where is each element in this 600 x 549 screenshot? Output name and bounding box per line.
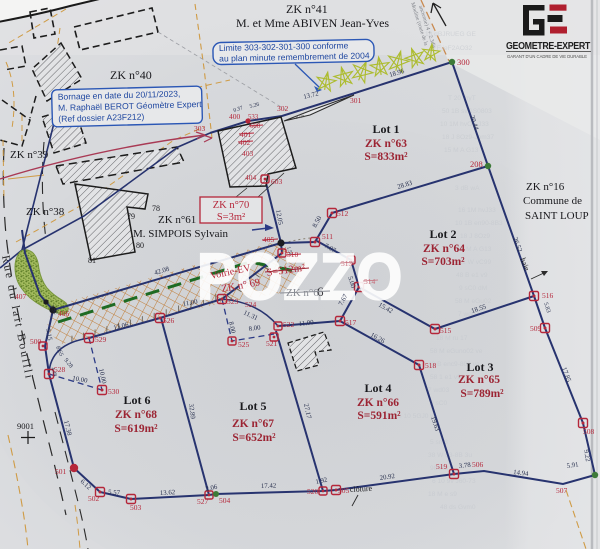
svg-text:10 1M hvO6-J33: 10 1M hvO6-J33 — [440, 121, 489, 128]
svg-text:505: 505 — [338, 486, 350, 495]
svg-text:S=619m²: S=619m² — [114, 423, 158, 435]
svg-text:Lot 2: Lot 2 — [430, 227, 457, 241]
svg-text:58 M eGuno02 ve: 58 M eGuno02 ve — [430, 348, 483, 355]
svg-text:ZK n°68: ZK n°68 — [115, 409, 157, 421]
svg-text:403: 403 — [242, 149, 254, 158]
svg-text:Lot 5: Lot 5 — [240, 399, 267, 413]
svg-text:301: 301 — [350, 96, 362, 105]
svg-text:13.62: 13.62 — [160, 489, 176, 497]
svg-text:SAINT LOUP: SAINT LOUP — [525, 210, 589, 222]
svg-text:522: 522 — [283, 320, 295, 329]
svg-text:501: 501 — [55, 467, 67, 476]
svg-text:S=789m²: S=789m² — [460, 388, 504, 400]
svg-text:GARANT D'UN CADRE DE VIE DURAB: GARANT D'UN CADRE DE VIE DURABLE — [507, 54, 587, 59]
svg-text:3.78: 3.78 — [458, 462, 471, 470]
svg-text:516: 516 — [542, 291, 554, 300]
svg-text:78: 78 — [152, 204, 160, 213]
svg-text:ZK n°16: ZK n°16 — [526, 181, 565, 193]
svg-text:ZK n°70: ZK n°70 — [213, 200, 250, 211]
svg-text:7 wd03: 7 wd03 — [428, 387, 450, 394]
svg-text:527: 527 — [197, 497, 209, 506]
svg-text:15 M A G13: 15 M A G13 — [444, 147, 479, 154]
svg-text:208: 208 — [470, 159, 483, 169]
svg-text:524: 524 — [245, 300, 257, 309]
svg-text:402: 402 — [239, 138, 251, 147]
svg-text:533: 533 — [248, 114, 259, 121]
svg-text:18 M ru 17: 18 M ru 17 — [436, 335, 468, 342]
svg-text:10 1B en90-8B3: 10 1B en90-8B3 — [455, 220, 503, 227]
svg-text:406: 406 — [58, 309, 70, 318]
svg-text:525: 525 — [238, 340, 250, 349]
svg-text:600: 600 — [250, 123, 261, 130]
svg-text:17.42: 17.42 — [261, 482, 277, 490]
svg-text:Lot 3: Lot 3 — [467, 360, 494, 374]
svg-text:T 20. hyT: T 20. hyT — [448, 95, 476, 102]
svg-text:302: 302 — [277, 104, 289, 113]
svg-text:Lot 4: Lot 4 — [365, 381, 392, 395]
svg-text:5.57: 5.57 — [108, 489, 121, 497]
svg-text:508: 508 — [583, 427, 595, 436]
svg-text:ZK n°61: ZK n°61 — [158, 214, 196, 226]
svg-text:M. et Mme ABIVEN Jean-Yves: M. et Mme ABIVEN Jean-Yves — [236, 16, 389, 30]
svg-text:clôture: clôture — [350, 484, 373, 494]
svg-text:529: 529 — [95, 335, 107, 344]
svg-text:521: 521 — [266, 339, 278, 348]
svg-text:504: 504 — [219, 496, 231, 505]
svg-text:518: 518 — [425, 361, 437, 370]
svg-text:ZK n°41: ZK n°41 — [286, 2, 328, 16]
svg-text:9001: 9001 — [17, 421, 34, 431]
svg-text:58 M eGu02: 58 M eGu02 — [455, 298, 492, 305]
svg-text:GEOMETRE-EXPERT: GEOMETRE-EXPERT — [506, 41, 591, 52]
svg-text:506: 506 — [472, 460, 484, 469]
svg-text:303: 303 — [194, 124, 206, 133]
svg-text:530: 530 — [108, 387, 120, 396]
svg-text:514: 514 — [364, 277, 376, 286]
svg-text:500: 500 — [30, 337, 42, 346]
svg-text:526: 526 — [163, 316, 175, 325]
svg-text:511: 511 — [322, 232, 333, 241]
svg-text:ZK n°40: ZK n°40 — [110, 68, 152, 82]
svg-text:S=652m²: S=652m² — [232, 432, 276, 444]
svg-text:300: 300 — [457, 57, 470, 67]
svg-text:400: 400 — [229, 112, 241, 121]
svg-text:517: 517 — [345, 318, 357, 327]
svg-text:523: 523 — [227, 297, 239, 306]
svg-text:9 sC0 dM: 9 sC0 dM — [459, 285, 487, 292]
svg-text:ZK n°39: ZK n°39 — [10, 149, 49, 161]
svg-text:18 M e s9: 18 M e s9 — [428, 491, 457, 498]
svg-text:ZK n°38: ZK n°38 — [26, 206, 65, 218]
svg-text:48 ds Gvm0: 48 ds Gvm0 — [440, 504, 476, 511]
svg-text:407: 407 — [15, 292, 27, 301]
svg-text:519: 519 — [436, 462, 448, 471]
svg-text:528: 528 — [54, 365, 66, 374]
svg-text:520: 520 — [307, 487, 319, 496]
svg-text:M. SIMPOIS Sylvain: M. SIMPOIS Sylvain — [133, 228, 229, 240]
svg-text:603: 603 — [271, 177, 283, 186]
svg-text:503: 503 — [130, 503, 142, 512]
svg-text:515: 515 — [440, 326, 452, 335]
svg-text:79: 79 — [127, 212, 135, 221]
svg-text:18 dBJRUEG GE: 18 dBJRUEG GE — [425, 31, 477, 38]
svg-text:50 1B svGS0803: 50 1B svGS0803 — [442, 108, 492, 115]
svg-text:ZK n°63: ZK n°63 — [365, 138, 407, 150]
svg-text:S=703m²: S=703m² — [421, 256, 465, 268]
svg-text:ZK n°64: ZK n°64 — [423, 243, 465, 255]
svg-text:80: 80 — [136, 241, 144, 250]
svg-text:513: 513 — [341, 259, 353, 268]
svg-text:404: 404 — [245, 173, 257, 182]
svg-text:81: 81 — [88, 256, 96, 265]
svg-text:38 W d3-8B 3u: 38 W d3-8B 3u — [428, 452, 472, 459]
svg-text:18 J 8Oz9: 18 J 8Oz9 — [460, 233, 490, 240]
svg-text:S=3m²: S=3m² — [217, 212, 245, 223]
svg-text:18 J 8Oz9-Jom37: 18 J 8Oz9-Jom37 — [442, 134, 494, 141]
svg-text:Lot 1: Lot 1 — [373, 122, 400, 136]
svg-text:58 1 e1 v9: 58 1 e1 v9 — [430, 374, 461, 381]
svg-text:Lot 6: Lot 6 — [124, 393, 151, 407]
svg-text:16 1M hvJ33: 16 1M hvJ33 — [458, 207, 496, 214]
svg-text:502: 502 — [88, 494, 100, 503]
svg-text:ZK n°65: ZK n°65 — [458, 374, 500, 386]
svg-text:512: 512 — [337, 209, 349, 218]
svg-text:507: 507 — [556, 486, 568, 495]
svg-text:ZK n°66: ZK n°66 — [357, 397, 399, 409]
svg-text:3 dB wA: 3 dB wA — [455, 185, 480, 192]
svg-text:509: 509 — [530, 324, 542, 333]
svg-text:S=591m²: S=591m² — [357, 410, 401, 422]
svg-text:48 B e1 v9: 48 B e1 v9 — [456, 272, 488, 279]
svg-text:ZK n°67: ZK n°67 — [232, 418, 274, 430]
svg-text:Commune de: Commune de — [523, 195, 582, 207]
svg-text:S=833m²: S=833m² — [364, 151, 408, 163]
